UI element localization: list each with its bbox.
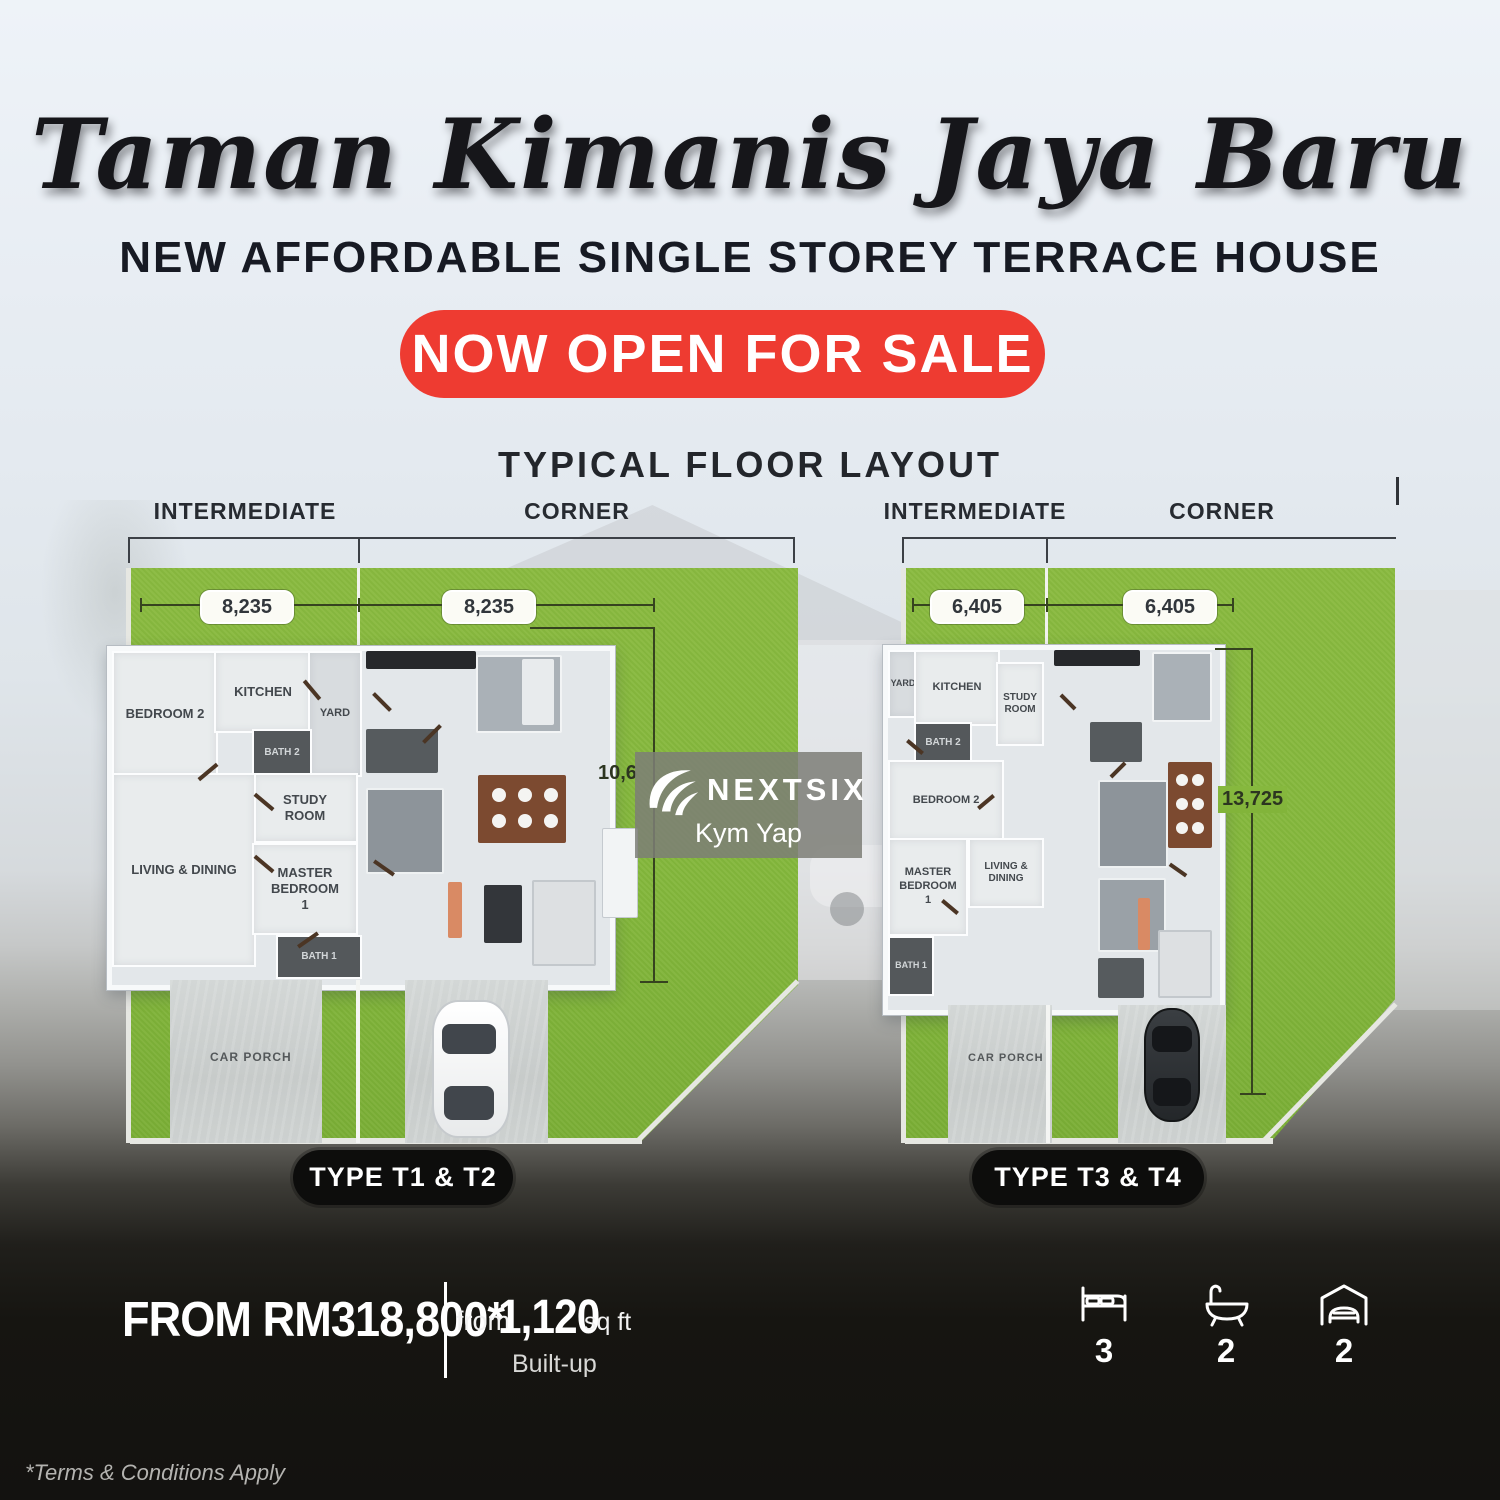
plan2-depth-dim: 13,725 <box>1218 786 1287 813</box>
plan1-intermediate-label: INTERMEDIATE <box>145 498 345 525</box>
dining-table <box>1168 762 1212 848</box>
dining-plate <box>492 788 506 802</box>
plan1-car-porch-label: CAR PORCH <box>210 1050 292 1064</box>
accent-cabinet <box>448 882 462 938</box>
plan2-dim-tick-2 <box>1046 598 1048 612</box>
entrance-porch <box>602 828 638 918</box>
room-label: BATH 2 <box>264 747 299 760</box>
room-label: BEDROOM 2 <box>126 706 205 722</box>
room-plan2-study: STUDY ROOM <box>996 662 1044 746</box>
dining-plate <box>518 788 532 802</box>
room-label: STUDY ROOM <box>274 792 336 825</box>
plan1-dim-right: 8,235 <box>442 590 536 624</box>
room-label: BATH 1 <box>895 960 927 971</box>
room-plan2-kitchen: KITCHEN <box>914 650 1000 726</box>
plan2-depth-tick-bottom <box>1240 1093 1266 1095</box>
room-plan1-living: LIVING & DINING <box>112 773 256 967</box>
car-windshield <box>1152 1026 1192 1052</box>
room-label: YARD <box>320 707 350 721</box>
plan2-dim-left: 6,405 <box>930 590 1024 624</box>
plan1-depth-connector <box>530 627 655 629</box>
bed-2 <box>1098 780 1168 868</box>
white-car <box>432 1000 510 1138</box>
bath-count: 2 <box>1178 1332 1274 1370</box>
plan1-dim-left: 8,235 <box>200 590 294 624</box>
garage-count: 2 <box>1296 1332 1392 1370</box>
dining-table <box>478 775 566 843</box>
room-label: MASTER BEDROOM 1 <box>898 866 958 907</box>
room-plan2-bath1: BATH 1 <box>888 936 934 996</box>
dining-plate <box>544 814 558 828</box>
room-plan1-bath1: BATH 1 <box>276 935 362 979</box>
dining-plate <box>1176 798 1188 810</box>
room-plan2-bath2: BATH 2 <box>914 722 972 764</box>
plan1-dim-tick-2 <box>358 598 360 612</box>
plan2-driveway-intermediate <box>948 1005 1052 1143</box>
feature-bedrooms: 3 <box>1056 1282 1152 1370</box>
room-plan2-living: LIVING & DINING <box>968 838 1044 908</box>
nextsix-logo-icon <box>645 760 703 822</box>
watermark-agent: Kym Yap <box>635 818 862 849</box>
plan2-stray-tick <box>1396 477 1399 505</box>
room-plan2-master: MASTER BEDROOM 1 <box>888 838 968 936</box>
page-title: Taman Kimanis Jaya Baru <box>0 98 1500 211</box>
plan2-corner-label: CORNER <box>1122 498 1322 525</box>
room-plan1-bedroom2: BEDROOM 2 <box>112 651 218 777</box>
plan1-bracket-tick-left <box>128 537 130 563</box>
watermark-box: NEXTSIX Kym Yap <box>635 752 862 858</box>
room-plan1-master: MASTER BEDROOM 1 <box>252 843 358 935</box>
dining-plate <box>1176 774 1188 786</box>
bed-count: 3 <box>1056 1332 1152 1370</box>
room-plan1-yard: YARD <box>308 651 362 777</box>
dining-plate <box>1192 798 1204 810</box>
bed-3 <box>1098 878 1166 952</box>
sofa <box>532 880 596 966</box>
watermark-brand: NEXTSIX <box>707 772 868 808</box>
room-label: LIVING & DINING <box>982 861 1030 886</box>
car-windshield <box>442 1024 496 1054</box>
plan2-dim-tick-1 <box>912 598 914 612</box>
plan1-boundary-line <box>356 980 360 1143</box>
kitchen-counter <box>366 651 476 669</box>
garage-icon <box>1296 1282 1392 1328</box>
plan1-corner-label: CORNER <box>477 498 677 525</box>
area-unit: sq ft <box>584 1308 631 1337</box>
feature-bathrooms: 2 <box>1178 1282 1274 1370</box>
builtup-label: Built-up <box>512 1350 597 1379</box>
dining-plate <box>518 814 532 828</box>
bed-pillows <box>522 659 554 725</box>
room-label: YARD <box>891 678 916 689</box>
feature-garage: 2 <box>1296 1282 1392 1370</box>
room-label: LIVING & DINING <box>131 862 236 878</box>
dark-car <box>1144 1008 1200 1122</box>
room-label: BEDROOM 2 <box>913 794 980 808</box>
room-label: STUDY ROOM <box>1003 692 1037 717</box>
dining-plate <box>544 788 558 802</box>
room-label: MASTER BEDROOM 1 <box>268 865 342 914</box>
bed-icon <box>1056 1282 1152 1328</box>
terms-note: *Terms & Conditions Apply <box>25 1460 285 1486</box>
plan2-intermediate-label: INTERMEDIATE <box>875 498 1075 525</box>
sofa <box>1158 930 1212 998</box>
plan2-dim-right: 6,405 <box>1123 590 1217 624</box>
bed <box>1152 652 1212 722</box>
room-label: BATH 1 <box>301 951 336 964</box>
plan1-bracket-line <box>128 537 795 539</box>
background-car-wheel <box>830 892 864 926</box>
room-label: KITCHEN <box>234 684 292 700</box>
kitchen-counter <box>1054 650 1140 666</box>
plan2-boundary-line <box>1046 1005 1050 1143</box>
car-rear-window <box>1153 1078 1191 1106</box>
room-label: BATH 2 <box>925 737 960 750</box>
plan1-dim-tick-1 <box>140 598 142 612</box>
car-rear-window <box>444 1086 494 1120</box>
dining-plate <box>1176 822 1188 834</box>
tv-console <box>484 885 522 943</box>
footer-divider <box>444 1282 447 1378</box>
accent-cabinet <box>1138 898 1150 950</box>
plan2-depth-line <box>1251 648 1253 1095</box>
plan2-type-badge: TYPE T3 & T4 <box>972 1150 1204 1205</box>
dining-plate <box>1192 822 1204 834</box>
plan2-dim-tick-3 <box>1232 598 1234 612</box>
bathroom-corner <box>1090 722 1142 762</box>
dining-plate <box>492 814 506 828</box>
plan1-depth-tick-bottom <box>640 981 668 983</box>
room-label: KITCHEN <box>933 681 982 695</box>
room-plan1-kitchen: KITCHEN <box>214 651 312 733</box>
bathroom-lower <box>1098 958 1144 998</box>
open-for-sale-badge: NOW OPEN FOR SALE <box>400 310 1045 398</box>
page-subtitle: NEW AFFORDABLE SINGLE STOREY TERRACE HOU… <box>0 233 1500 283</box>
plan2-depth-connector <box>1215 648 1253 650</box>
plan1-dim-tick-3 <box>653 598 655 612</box>
plan2-bracket-tick-left <box>902 537 904 563</box>
plan1-type-badge: TYPE T1 & T2 <box>293 1150 513 1205</box>
plan1-bracket-tick-right <box>793 537 795 563</box>
plan2-bracket-line <box>902 537 1396 539</box>
plan2-bracket-tick-mid <box>1046 537 1048 563</box>
bath-icon <box>1178 1282 1274 1328</box>
room-plan1-bath2: BATH 2 <box>252 729 312 777</box>
plan2-car-porch-label: CAR PORCH <box>968 1052 1044 1064</box>
dining-plate <box>1192 774 1204 786</box>
plan1-depth-dim: 10,6 <box>598 762 637 785</box>
section-title: TYPICAL FLOOR LAYOUT <box>0 444 1500 486</box>
plan1-bracket-tick-mid <box>358 537 360 563</box>
